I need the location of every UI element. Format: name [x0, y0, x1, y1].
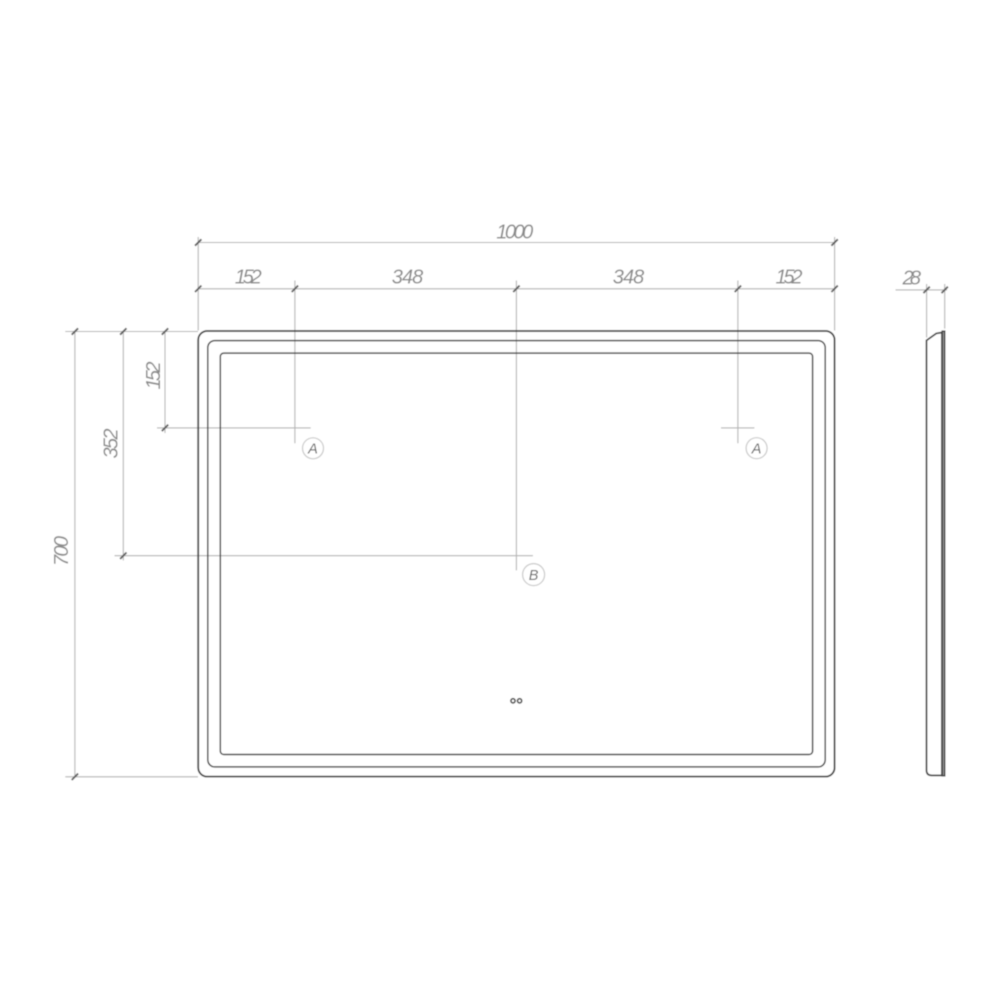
svg-text:152: 152 — [776, 267, 803, 289]
svg-text:152: 152 — [235, 267, 262, 289]
svg-text:700: 700 — [51, 536, 73, 566]
svg-text:28: 28 — [902, 268, 922, 290]
svg-text:348: 348 — [613, 267, 645, 289]
svg-text:152: 152 — [143, 362, 165, 390]
svg-text:A: A — [751, 442, 762, 458]
svg-text:B: B — [529, 568, 539, 584]
svg-text:1000: 1000 — [496, 221, 533, 243]
svg-text:352: 352 — [101, 429, 123, 459]
svg-text:348: 348 — [392, 267, 424, 289]
svg-text:A: A — [307, 442, 318, 458]
